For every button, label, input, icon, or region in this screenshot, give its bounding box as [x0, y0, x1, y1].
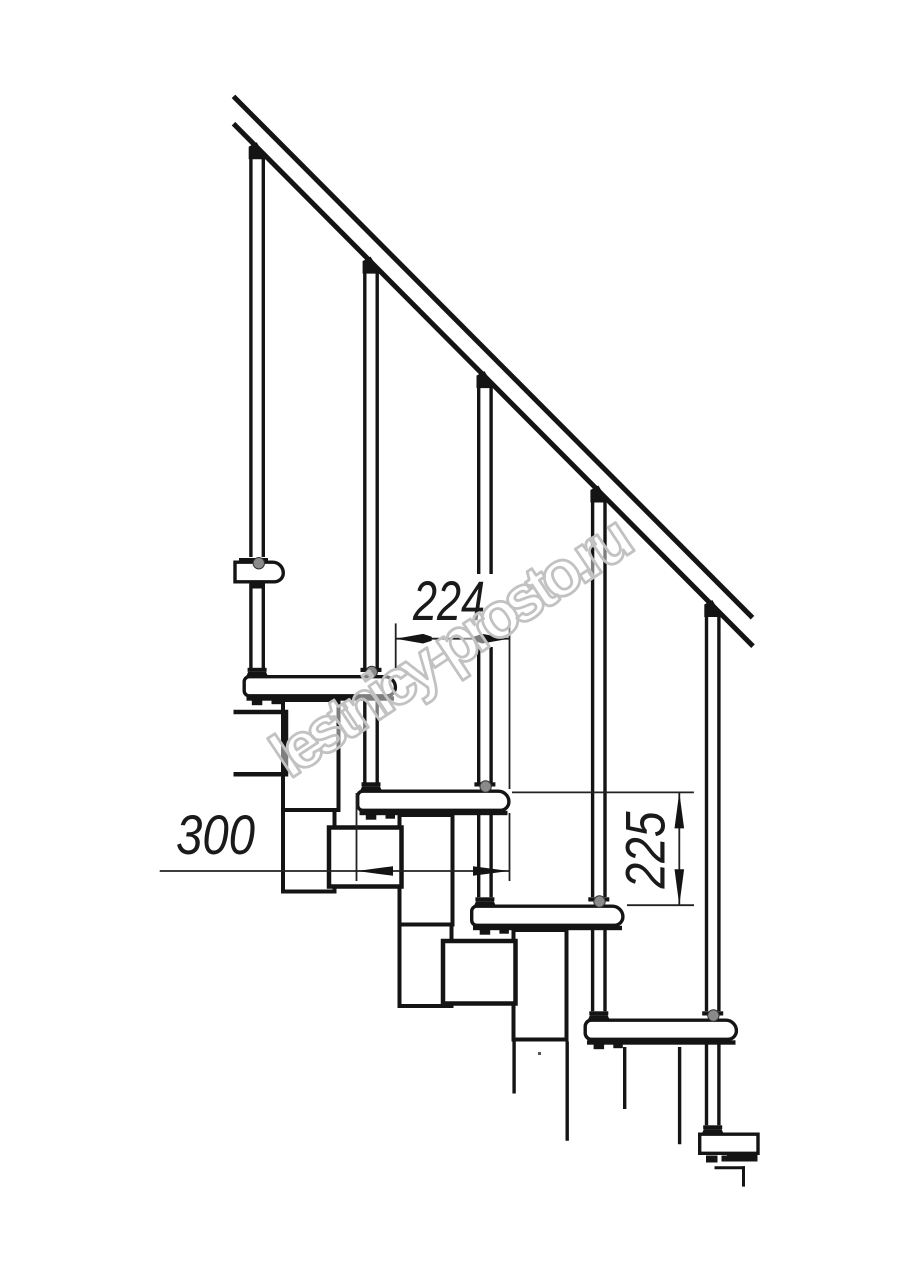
- svg-text:300: 300: [176, 803, 255, 866]
- svg-text:225: 225: [614, 811, 677, 890]
